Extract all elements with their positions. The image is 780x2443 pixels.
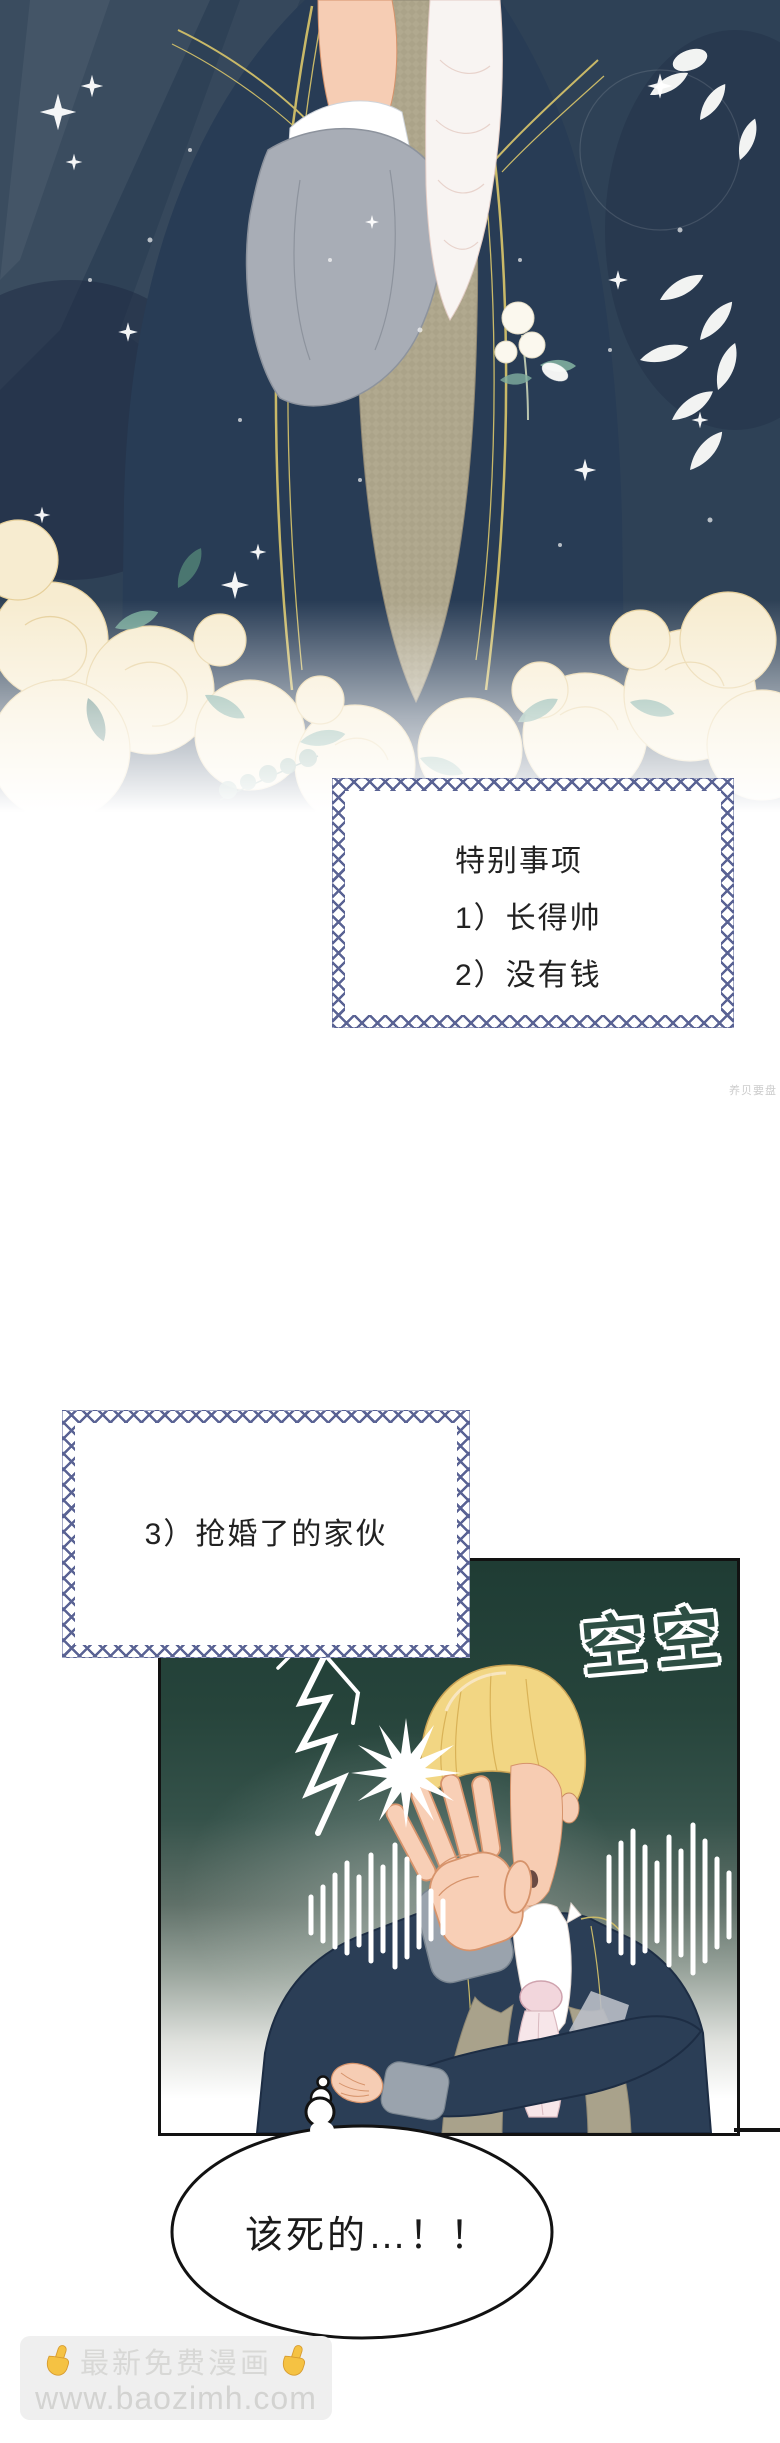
note-box-2-inner: 3）抢婚了的家伙 bbox=[75, 1423, 457, 1645]
footer-line-1: 最新免费漫画 bbox=[80, 2340, 272, 2382]
footer-watermark[interactable]: 最新免费漫画 www.baozimh.com bbox=[20, 2336, 332, 2420]
speech-bubble: 该死的…！！ bbox=[150, 2056, 580, 2356]
panel-border-extension bbox=[734, 2128, 780, 2132]
cravat-knot bbox=[520, 1981, 562, 2013]
thought-dot-small bbox=[318, 2077, 329, 2088]
note-item-3: 3）抢婚了的家伙 bbox=[145, 1506, 388, 1563]
illustration-panel bbox=[0, 0, 780, 812]
bubble-text: 该死的…！！ bbox=[245, 2215, 491, 2257]
footer-line-2: www.baozimh.com bbox=[35, 2380, 317, 2417]
note-title: 特别事项 bbox=[455, 833, 602, 890]
side-watermark: 养贝要盘 bbox=[729, 1082, 777, 1098]
note-box-1: 特别事项 1）长得帅 2）没有钱 bbox=[332, 778, 734, 1028]
finger-down-icon bbox=[278, 2343, 310, 2379]
note-box-2: 3）抢婚了的家伙 bbox=[62, 1410, 470, 1658]
note-item-2: 2）没有钱 bbox=[455, 947, 602, 1004]
note-box-1-inner: 特别事项 1）长得帅 2）没有钱 bbox=[345, 791, 721, 1015]
note-item-1: 1）长得帅 bbox=[455, 890, 602, 947]
sfx-text: 空空 bbox=[577, 1585, 732, 1690]
finger-down-icon bbox=[42, 2343, 74, 2379]
comic-page: 特别事项 1）长得帅 2）没有钱 养贝要盘 3）抢婚了的家伙 bbox=[0, 0, 780, 2443]
